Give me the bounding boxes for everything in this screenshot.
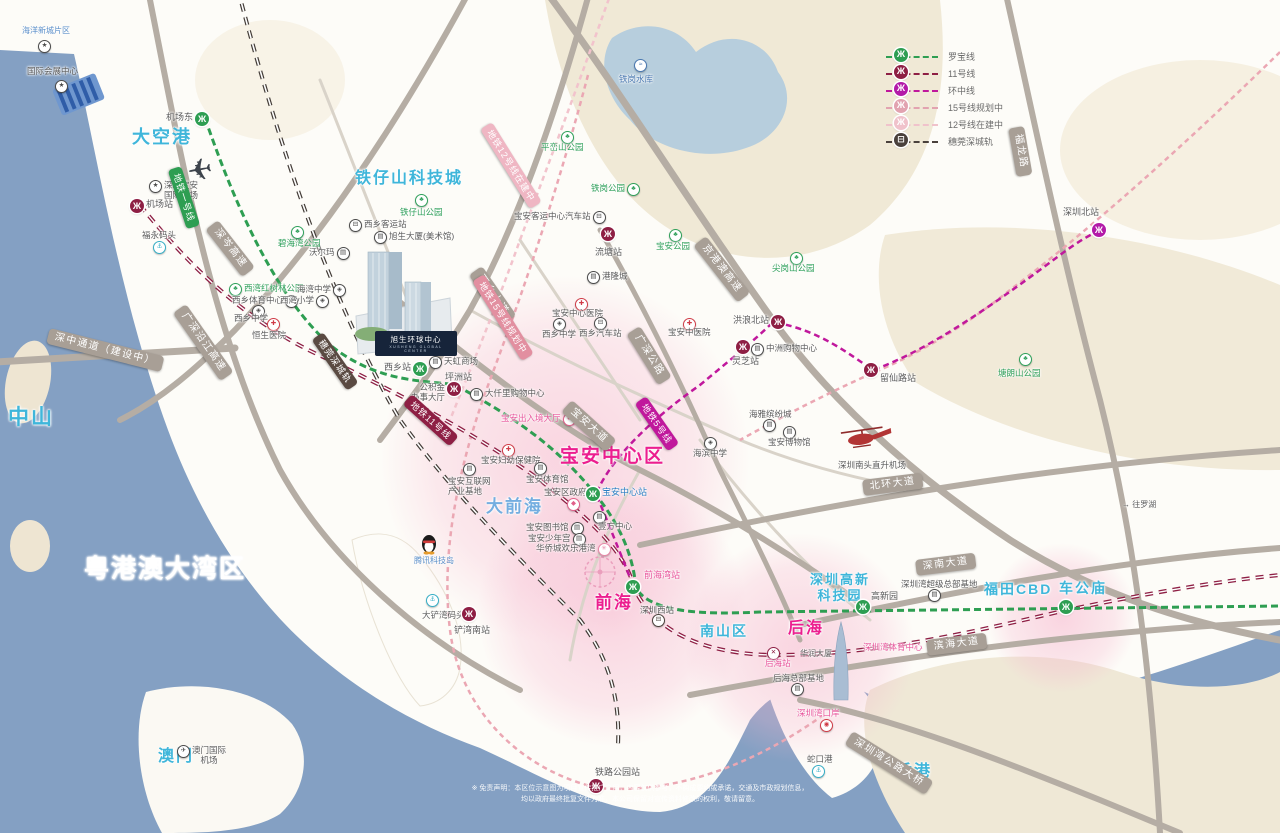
poi-xixiang-bus-station: 西乡汽车站 xyxy=(579,328,622,338)
station-jichangzhan: Ж机场站 xyxy=(130,199,173,213)
metro-purple-icon: Ж xyxy=(1092,223,1106,237)
poi-baoan-internet-base-label: 宝安互联网 产业基地 xyxy=(448,476,491,496)
park-tanglangshan-icon: ♣ xyxy=(1019,353,1032,366)
star-icon: ★ xyxy=(149,180,162,193)
building-icon: ▤ xyxy=(763,419,776,432)
metro-maroon-icon: Ж xyxy=(462,607,476,621)
poi-ganglongcheng-label: 港隆城 xyxy=(602,271,628,281)
shenzhen-bay-area-map: ✈ xyxy=(0,0,1280,833)
poi-fuyong-ferry-icon: ⚓ xyxy=(153,241,166,254)
road-badge-shennan-avenue: 深南大道 xyxy=(915,553,977,576)
station-jichangzhan-label: 机场站 xyxy=(146,199,173,210)
poi-shekou-port: 蛇口港 xyxy=(807,754,833,764)
poi-macau-airport: ✈澳门国际 机场 xyxy=(177,745,226,765)
road-badge-baoan-avenue: 宝安大道 xyxy=(561,400,616,452)
station-liuxianlu-label: 留仙路站 xyxy=(880,373,916,384)
metro-maroon-icon: Ж xyxy=(447,382,461,396)
poi-baoan-bus-center-label: 宝安客运中心汽车站 xyxy=(514,211,591,221)
legend-line-sample: Ж xyxy=(886,107,938,109)
disclaimer: ※ 免责声明：本区位示意图为项目宣传推广之用，内容仅供参考，不构成要约或承诺，交… xyxy=(380,784,900,805)
legend-item-1: Ж11号线 xyxy=(886,65,1003,82)
area-label-zhongshan: 中山 xyxy=(8,405,54,430)
station-honglangbei: 洪浪北站Ж xyxy=(733,315,785,329)
poi-dachanwan-ferry-icon: ⚓ xyxy=(426,594,439,607)
metro-lightpink-icon: Ж xyxy=(894,116,908,130)
building-icon: ▤ xyxy=(337,247,350,260)
road-badge-shenzhong-corridor: 深中通道（建设中） xyxy=(46,328,164,372)
poi-baoan-museum: 宝安博物馆 xyxy=(768,437,811,447)
poi-shenzhen-bay-port-label: 深圳湾口岸 xyxy=(797,708,840,718)
area-label-qianhai: 前海 xyxy=(595,593,633,613)
metro-green-icon: Ж xyxy=(586,487,600,501)
legend-line-sample: Ж xyxy=(886,56,938,58)
poi-convention-center: 国际会展中心 xyxy=(27,66,78,76)
label-ocean-newtown: 海洋新城片区 xyxy=(22,26,70,36)
poi-nantou-heliport-label: 深圳南头直升机场 xyxy=(838,460,906,470)
poi-tiegang-reservoir-label: 铁岗水库 xyxy=(619,74,653,84)
legend-label: 12号线在建中 xyxy=(948,118,1003,131)
metro-maroon-icon: Ж xyxy=(864,363,878,377)
station-chegongmiao-icon: Ж xyxy=(1059,600,1073,614)
star-icon: ★ xyxy=(38,40,51,53)
metro-green-icon: Ж xyxy=(195,112,209,126)
metro-green-icon: Ж xyxy=(626,580,640,594)
poi-xusheng-tower-gallery-label: 旭生大厦(美术馆) xyxy=(389,231,454,241)
poi-szbay-super-hq-icon: ▤ xyxy=(928,589,941,602)
road-badge-yanjiang-expwy: 广深沿江高速 xyxy=(173,304,234,381)
poi-dachanwan-ferry: 大铲湾码头 xyxy=(422,610,465,620)
label-to-luohu-label: → 往罗湖 xyxy=(1122,500,1156,510)
poi-baoan-tcm-hospital-label: 宝安中医院 xyxy=(668,327,711,337)
poi-china-resources-tower: 华润大厦 xyxy=(800,649,832,659)
station-gaoxinyuan: 高新园 xyxy=(871,591,898,602)
area-label-dakonggang-label: 大空港 xyxy=(132,127,192,149)
station-honglangbei-label: 洪浪北站 xyxy=(733,315,769,326)
plane-icon: ✈ xyxy=(177,745,190,758)
poi-rainbow-mall: ▤天虹商场 xyxy=(429,356,478,369)
anchor-icon: ⚓ xyxy=(426,594,439,607)
poi-houhai-hq-base-label: 后海总部基地 xyxy=(773,673,824,683)
legend-line-sample: Ж xyxy=(886,73,938,75)
park-pingluanshan: 平峦山公园 xyxy=(541,142,584,152)
poi-walmart: 沃尔玛▤ xyxy=(309,247,350,260)
area-label-nanshan-label: 南山区 xyxy=(700,623,748,640)
poi-xusheng-tower-gallery: ▤旭生大厦(美术馆) xyxy=(374,231,454,244)
poi-ganglongcheng: ▤港隆城 xyxy=(587,271,628,284)
line-badge-metro-12-label: 地铁12号线在建中 xyxy=(485,128,538,203)
poi-xixiang-middle-school-w: 西乡中学 xyxy=(234,313,268,323)
station-chanwannan: 铲湾南站 xyxy=(454,625,490,636)
poi-shenzhen-bay-port: 深圳湾口岸 xyxy=(797,708,840,718)
poi-oct-harbour-label: 华侨城欢乐港湾 xyxy=(536,543,596,553)
park-jiangangshan: 尖岗山公园 xyxy=(772,263,815,273)
road-badge-fulong-road-label: 福龙路 xyxy=(1011,133,1029,169)
school-icon: ◈ xyxy=(333,284,346,297)
poi-haibin-middle-school-label: 海滨中学 xyxy=(693,448,727,458)
legend-item-5: ⊟穗莞深城轨 xyxy=(886,133,1003,150)
poi-baoan-internet-base: 宝安互联网 产业基地 xyxy=(448,476,491,496)
line-badge-suiwanshen-rail-label: 穗莞深城轨 xyxy=(316,338,354,385)
poi-walmart-label: 沃尔玛 xyxy=(309,247,335,257)
poi-nantou-heliport: 深圳南头直升机场 xyxy=(838,460,906,470)
area-label-qianhai-label: 前海 xyxy=(595,593,633,613)
legend-label: 穗莞深城轨 xyxy=(948,135,993,148)
poi-baoan-internet-base-icon: ▤ xyxy=(463,463,476,476)
station-qianhaiwan-icon: Ж xyxy=(626,580,640,594)
legend-item-2: Ж环中线 xyxy=(886,82,1003,99)
station-chanwannan-icon: Ж xyxy=(462,607,476,621)
area-label-dakonggang: 大空港 xyxy=(132,127,192,149)
area-label-hitech-park-label: 深圳高新 科技园 xyxy=(810,572,870,603)
area-label-daqianhai-label: 大前海 xyxy=(486,497,543,517)
line-badge-metro-11-label: 地铁11号线 xyxy=(408,399,453,441)
building-icon: ▤ xyxy=(587,271,600,284)
road-badge-beihuan-avenue-label: 北环大道 xyxy=(869,476,916,494)
anchor-icon: ⚓ xyxy=(153,241,166,254)
label-tencent-island: 腾讯科技岛 xyxy=(414,556,454,566)
legend-label: 罗宝线 xyxy=(948,50,975,63)
station-jichangdong: 机场东Ж xyxy=(166,112,209,126)
station-shenzhen-north-label: 深圳北站 xyxy=(1063,207,1099,218)
poi-haiwan-middle-school-label: 海湾中学 xyxy=(297,284,331,294)
station-gaoxinyuan-label: 高新园 xyxy=(871,591,898,602)
line-badge-metro-15-label: 地铁15号线规划中 xyxy=(477,280,530,355)
bus-icon: ⊟ xyxy=(593,211,606,224)
poi-daqianli-mall: ▤大仟里购物中心 xyxy=(470,388,545,401)
road-badge-shencen-expwy: 深岑高速 xyxy=(205,220,255,277)
metro-green-icon: Ж xyxy=(1059,600,1073,614)
road-badge-yanjiang-expwy-label: 广深沿江高速 xyxy=(179,311,228,374)
park-baoan: 宝安公园 xyxy=(656,241,690,251)
area-label-tiezishan-tech-city-label: 铁仔山科技城 xyxy=(355,169,463,188)
area-label-tiezishan-tech-city: 铁仔山科技城 xyxy=(355,169,463,188)
poi-baoan-district-gov: 宝安区政府 xyxy=(544,487,587,497)
poi-houhai-hq-base-icon: ▤ xyxy=(791,683,804,696)
water-icon: ≈ xyxy=(634,59,647,72)
poi-yifang-center: 壹方中心 xyxy=(598,521,632,531)
poi-zhongzhou-mall: ▤中洲购物中心 xyxy=(751,343,817,356)
area-label-nanshan: 南山区 xyxy=(700,623,748,640)
station-liuxianlu: 留仙路站 xyxy=(880,373,916,384)
poi-rainbow-mall-label: 天虹商场 xyxy=(444,356,478,366)
park-jiangangshan-label: 尖岗山公园 xyxy=(772,263,815,273)
poi-tiegang-reservoir: 铁岗水库 xyxy=(619,74,653,84)
area-label-zhongshan-label: 中山 xyxy=(8,405,54,430)
station-gaoxinyuan-icon: Ж xyxy=(856,600,870,614)
station-shenzhen-north: 深圳北站 xyxy=(1063,207,1099,218)
poi-fuyong-ferry: 福永码头 xyxy=(142,230,176,240)
poi-oct-harbour: 华侨城欢乐港湾✳ xyxy=(536,543,611,556)
legend-label: 11号线 xyxy=(948,67,975,80)
label-to-luohu: → 往罗湖 xyxy=(1122,500,1156,510)
building-icon: ▤ xyxy=(470,388,483,401)
poi-haibin-middle-school: 海滨中学 xyxy=(693,448,727,458)
metro-green-icon: Ж xyxy=(856,600,870,614)
poi-haiya-mall-label: 海雅缤纷城 xyxy=(749,409,792,419)
road-badge-guangshen-road-label: 广深公路 xyxy=(632,333,667,378)
park-bihaiwan-icon: ♣ xyxy=(291,226,304,239)
metro-maroon-icon: Ж xyxy=(771,315,785,329)
line-badge-suiwanshen-rail: 穗莞深城轨 xyxy=(312,332,359,391)
park-tiezishan-icon: ♣ xyxy=(415,194,428,207)
station-houhai-label: 后海站 xyxy=(765,658,791,668)
road-badge-baoan-avenue-label: 宝安大道 xyxy=(568,406,610,446)
poi-baoan-maternity-hospital-label: 宝安妇幼保健院 xyxy=(481,455,541,465)
rail-white-icon: ⊟ xyxy=(652,614,665,627)
school-icon: ◈ xyxy=(316,295,329,308)
poi-baoan-district-gov-label: 宝安区政府 xyxy=(544,487,587,497)
tree-icon: ♣ xyxy=(627,183,640,196)
station-shenzhen-west-icon: ⊟ xyxy=(652,614,665,627)
station-chanwannan-label: 铲湾南站 xyxy=(454,625,490,636)
legend-line-sample: Ж xyxy=(886,90,938,92)
area-label-daqianhai: 大前海 xyxy=(486,497,543,517)
road-badge-shenzhong-corridor-label: 深中通道（建设中） xyxy=(53,332,156,369)
poi-china-resources-tower-label: 华润大厦 xyxy=(800,649,832,659)
poi-xixiang-middle-school-e-label: 西乡中学 xyxy=(542,329,576,339)
road-badge-shennan-avenue-label: 深南大道 xyxy=(922,556,969,574)
station-jichangdong-label: 机场东 xyxy=(166,112,193,123)
poi-convention-center-icon: ★ xyxy=(55,80,68,93)
area-label-gba: 粤港澳大湾区 xyxy=(84,554,246,584)
road-badge-binhai-avenue: 滨海大道 xyxy=(926,633,988,656)
metro-pink-icon: Ж xyxy=(894,99,908,113)
building-icon: ▤ xyxy=(463,463,476,476)
metro-maroon-icon: Ж xyxy=(736,340,750,354)
poi-baoan-library-label: 宝安图书馆 xyxy=(526,522,569,532)
rail-dark-icon: ⊟ xyxy=(894,133,908,147)
building-icon: ▤ xyxy=(751,343,764,356)
map-markers-layer: 中山粤港澳大湾区大空港铁仔山科技城大前海宝安中心区前海南山区后海深圳高新 科技园… xyxy=(0,0,1280,833)
metro-green-icon: Ж xyxy=(413,362,427,376)
station-baoan-center: Ж宝安中心站 xyxy=(586,487,647,501)
poi-baoan-bus-center: 宝安客运中心汽车站⊟ xyxy=(514,211,606,224)
poi-szbay-sports-center-label: 深圳湾体育中心 xyxy=(863,642,923,652)
poi-baoan-gymnasium-label: 宝安体育馆 xyxy=(526,474,569,484)
area-label-chegongmiao: 车公庙 xyxy=(1059,580,1107,597)
poi-baoan-tcm-hospital: 宝安中医院 xyxy=(668,327,711,337)
poi-shenzhen-bay-port-icon: ◉ xyxy=(820,719,833,732)
road-badge-shencen-expwy-label: 深岑高速 xyxy=(211,227,249,271)
station-xixiang: 西乡站Ж xyxy=(384,362,427,376)
gov-icon: ◆ xyxy=(567,498,580,511)
area-label-houhai-label: 后海 xyxy=(788,619,824,638)
poi-haiya-mall: 海雅缤纷城 xyxy=(749,409,792,419)
road-badge-jinggangao-expwy: 京港澳高速 xyxy=(693,236,750,302)
tree-icon: ♣ xyxy=(415,194,428,207)
area-label-baoan-center: 宝安中心区 xyxy=(560,446,665,469)
legend-item-4: Ж12号线在建中 xyxy=(886,116,1003,133)
metro-maroon-icon: Ж xyxy=(894,65,908,79)
building-icon: ▤ xyxy=(429,356,442,369)
station-baoan-center-label: 宝安中心站 xyxy=(602,487,647,498)
line-badge-metro-12: 地铁12号线在建中 xyxy=(480,122,542,209)
park-tiezishan-label: 铁仔山公园 xyxy=(400,207,443,217)
park-tiegang: 铁岗公园♣ xyxy=(591,183,640,196)
road-badge-beihuan-avenue: 北环大道 xyxy=(862,473,924,496)
poi-baoan-museum-label: 宝安博物馆 xyxy=(768,437,811,447)
legend-line-sample: Ж xyxy=(886,124,938,126)
line-badge-metro-5: 地铁5号线 xyxy=(635,396,680,451)
metro-purple-icon: Ж xyxy=(894,82,908,96)
area-label-futian-cbd: 福田CBD xyxy=(984,581,1052,598)
poi-baoan-youth-palace-label: 宝安少年宫 xyxy=(528,533,571,543)
park-tanglangshan-label: 塘朗山公园 xyxy=(998,368,1041,378)
park-tiegang-label: 铁岗公园 xyxy=(591,183,625,193)
poi-daqianli-mall-label: 大仟里购物中心 xyxy=(485,388,545,398)
poi-fuyong-ferry-label: 福永码头 xyxy=(142,230,176,240)
station-liuxianlu-icon: Ж xyxy=(864,363,878,377)
station-lingzhi-icon: Ж xyxy=(736,340,750,354)
poi-baoan-maternity-hospital: 宝安妇幼保健院 xyxy=(481,455,541,465)
building-icon: ▤ xyxy=(928,589,941,602)
building-icon: ▤ xyxy=(374,231,387,244)
project-name: 旭生环球中心 xyxy=(377,334,455,345)
station-qianhaiwan: 前海湾站 xyxy=(644,570,680,581)
anchor-icon: ⚓ xyxy=(812,765,825,778)
poi-hengsheng-hospital-label: 恒生医院 xyxy=(252,330,286,340)
poi-shekou-port-icon: ⚓ xyxy=(812,765,825,778)
station-liutang-icon: Ж xyxy=(601,227,615,241)
poi-shekou-port-label: 蛇口港 xyxy=(807,754,833,764)
poi-xixiang-bus-terminal-label: 西乡客运站 xyxy=(364,219,407,229)
poi-yifang-center-label: 壹方中心 xyxy=(598,521,632,531)
poi-convention-center-label: 国际会展中心 xyxy=(27,66,78,76)
bus-icon: ⊟ xyxy=(349,219,362,232)
legend-item-0: Ж罗宝线 xyxy=(886,48,1003,65)
poi-baoan-district-gov-icon: ◆ xyxy=(567,498,580,511)
area-label-baoan-center-label: 宝安中心区 xyxy=(560,446,665,469)
station-railway-park-label: 铁路公园站 xyxy=(595,767,640,778)
poi-dachanwan-ferry-label: 大铲湾码头 xyxy=(422,610,465,620)
legend-item-3: Ж15号线规划中 xyxy=(886,99,1003,116)
building-icon: ▤ xyxy=(791,683,804,696)
station-lingzhi: 灵芝站 xyxy=(732,356,759,367)
area-label-chegongmiao-label: 车公庙 xyxy=(1059,580,1107,597)
legend-label: 15号线规划中 xyxy=(948,101,1003,114)
poi-xixiang-sports-center-label: 西乡体育中心 xyxy=(232,295,283,305)
station-houhai: 后海站 xyxy=(765,658,791,668)
park-xiwan-mangrove-label: 西湾红树林公园 xyxy=(244,283,304,293)
poi-baoan-immigration-hall-label: 宝安出入境大厅 xyxy=(501,413,561,423)
disclaimer-line1: ※ 免责声明：本区位示意图为项目宣传推广之用，内容仅供参考，不构成要约或承诺，交… xyxy=(380,784,900,795)
station-qianhaiwan-label: 前海湾站 xyxy=(644,570,680,581)
station-shenzhen-north-icon: Ж xyxy=(1092,223,1106,237)
project-nameplate: 旭生环球中心 XUSHENG GLOBAL CENTER xyxy=(375,331,457,356)
station-xixiang-label: 西乡站 xyxy=(384,362,411,373)
poi-xiwan-primary-school-label: 西湾小学 xyxy=(280,295,314,305)
road-badge-binhai-avenue-label: 滨海大道 xyxy=(933,636,980,654)
poi-szbay-sports-center: 深圳湾体育中心 xyxy=(863,642,923,652)
poi-xixiang-middle-school-e: 西乡中学 xyxy=(542,329,576,339)
metro-green-icon: Ж xyxy=(894,48,908,62)
ferris-icon: ✳ xyxy=(598,543,611,556)
poi-houhai-hq-base: 后海总部基地 xyxy=(773,673,824,683)
tree-icon: ♣ xyxy=(291,226,304,239)
poi-xixiang-bus-station-label: 西乡汽车站 xyxy=(579,328,622,338)
poi-szbay-super-hq: 深圳湾超级总部基地 xyxy=(901,579,978,589)
road-badge-guangshen-road: 广深公路 xyxy=(626,326,671,385)
station-liutang: 流塘站 xyxy=(595,247,622,258)
poi-szbay-super-hq-label: 深圳湾超级总部基地 xyxy=(901,579,978,589)
area-label-futian-cbd-label: 福田CBD xyxy=(984,581,1052,598)
park-pingluanshan-label: 平峦山公园 xyxy=(541,142,584,152)
project-name-latin: XUSHENG GLOBAL CENTER xyxy=(377,345,455,353)
poi-hengsheng-hospital: 恒生医院 xyxy=(252,330,286,340)
star-icon: ★ xyxy=(55,80,68,93)
legend-label: 环中线 xyxy=(948,84,975,97)
poi-baoan-gymnasium: 宝安体育馆 xyxy=(526,474,569,484)
legend-line-sample: ⊟ xyxy=(886,141,938,143)
red-dot-icon: ◉ xyxy=(820,719,833,732)
label-tencent-island-label: 腾讯科技岛 xyxy=(414,556,454,566)
metro-maroon-icon: Ж xyxy=(601,227,615,241)
park-baoan-label: 宝安公园 xyxy=(656,241,690,251)
metro-maroon-icon: Ж xyxy=(130,199,144,213)
poi-ocean-newtown-icon: ★ xyxy=(38,40,51,53)
poi-zhongzhou-mall-label: 中洲购物中心 xyxy=(766,343,817,353)
station-lingzhi-label: 灵芝站 xyxy=(732,356,759,367)
label-ocean-newtown-label: 海洋新城片区 xyxy=(22,26,70,36)
park-tiezishan: 铁仔山公园 xyxy=(400,207,443,217)
road-badge-jinggangao-expwy-label: 京港澳高速 xyxy=(699,243,744,296)
tree-icon: ♣ xyxy=(1019,353,1032,366)
poi-macau-airport-label: 澳门国际 机场 xyxy=(192,745,226,765)
line-badge-metro-15: 地铁15号线规划中 xyxy=(472,274,534,361)
station-railway-park: 铁路公园站 xyxy=(595,767,640,778)
poi-haiya-mall-icon: ▤ xyxy=(763,419,776,432)
poi-tiegang-reservoir-icon: ≈ xyxy=(634,59,647,72)
area-label-houhai: 后海 xyxy=(788,619,824,638)
metro-legend: Ж罗宝线Ж11号线Ж环中线Ж15号线规划中Ж12号线在建中⊟穗莞深城轨 xyxy=(886,48,1003,150)
line-badge-metro-5-label: 地铁5号线 xyxy=(639,402,674,446)
poi-xixiang-middle-school-w-label: 西乡中学 xyxy=(234,313,268,323)
road-badge-fulong-road: 福龙路 xyxy=(1008,126,1032,177)
poi-xiwan-primary-school: 西湾小学◈ xyxy=(280,295,329,308)
park-tanglangshan: 塘朗山公园 xyxy=(998,368,1041,378)
station-liutang-label: 流塘站 xyxy=(595,247,622,258)
area-label-hitech-park: 深圳高新 科技园 xyxy=(810,572,870,603)
disclaimer-line2: 均以政府最终批复文件为准，本公司保留对宣传资料修改的权利，敬请留意。 xyxy=(380,795,900,806)
area-label-gba-label: 粤港澳大湾区 xyxy=(84,554,246,584)
